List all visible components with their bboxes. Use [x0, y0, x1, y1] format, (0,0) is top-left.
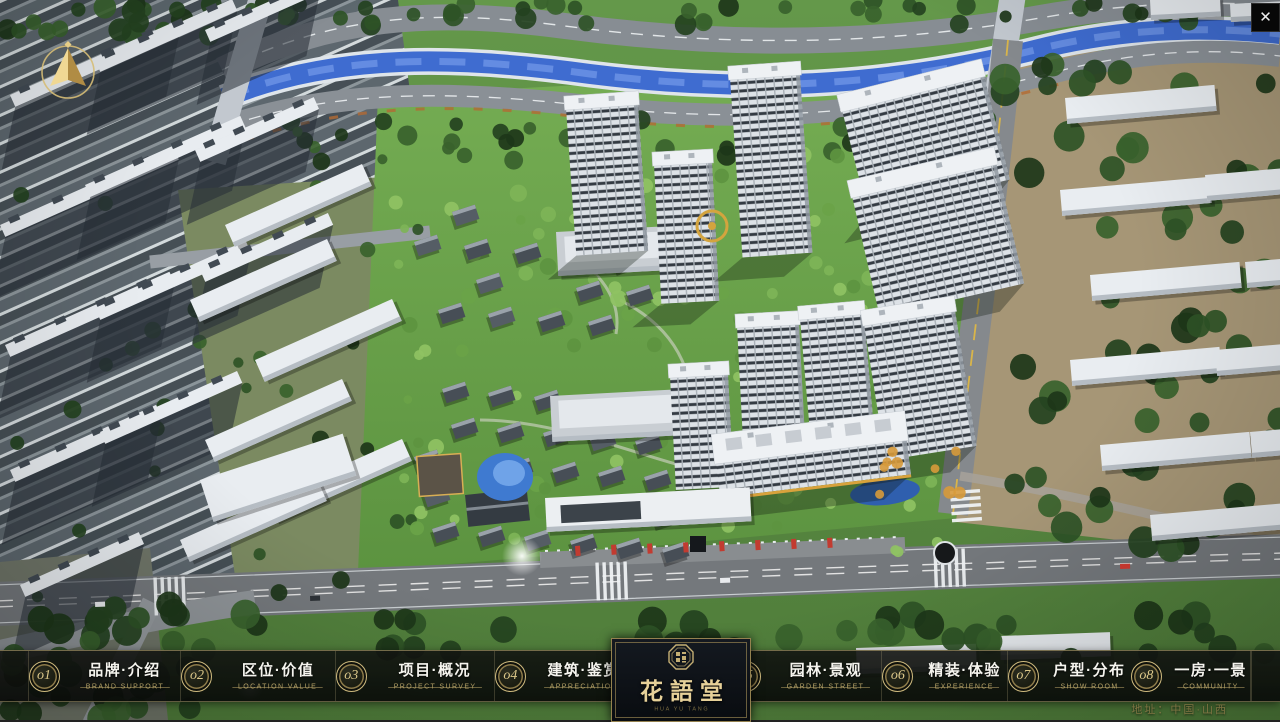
nav-label-en: GARDEN STREET — [787, 683, 865, 691]
nav-label-en: PROJECT SURVEY — [393, 683, 476, 691]
close-button[interactable]: ✕ — [1251, 3, 1280, 32]
nav-number-medallion: o8 — [1131, 661, 1162, 692]
nav-item-brand-intro[interactable]: o1 品牌·介绍 BRAND SUPPORT — [29, 651, 182, 701]
nav-item-room-view[interactable]: o8 一房·一景 COMMUNITY — [1131, 651, 1252, 701]
nav-item-project-survey[interactable]: o3 项目·概况 PROJECT SURVEY — [336, 651, 495, 701]
nav-label-zh: 园林·景观 — [790, 659, 863, 680]
nav-label-zh: 项目·概况 — [399, 659, 472, 680]
bottom-navbar: o1 品牌·介绍 BRAND SUPPORT o2 区位·价值 LOCATION… — [0, 650, 1280, 702]
nav-item-interior-experience[interactable]: o6 精装·体验 EXPERIENCE — [882, 651, 1007, 701]
nav-label-zh: 一房·一景 — [1174, 659, 1247, 680]
seal-emblem-icon — [668, 644, 694, 670]
masterplan-render — [0, 0, 1280, 720]
project-logo-title: 花語堂 — [640, 672, 730, 706]
nav-item-location-value[interactable]: o2 区位·价值 LOCATION VALUE — [181, 651, 335, 701]
nav-number-medallion: o6 — [882, 661, 913, 692]
compass — [36, 34, 100, 104]
compass-north-marker — [64, 41, 71, 48]
project-logo-panel: 花語堂 HUA YU TANG — [611, 638, 751, 722]
close-icon: ✕ — [1259, 10, 1272, 25]
project-address: 地址：中国·山西 — [1131, 701, 1228, 717]
compass-arrow-left — [50, 48, 68, 86]
nav-label-zh: 户型·分布 — [1053, 659, 1126, 680]
navbar-center-slot: 花語堂 HUA YU TANG — [634, 651, 731, 701]
nav-label-en: LOCATION VALUE — [238, 683, 317, 691]
nav-item-unit-distribution[interactable]: o7 户型·分布 SHOW ROOM — [1008, 651, 1131, 701]
nav-label-zh: 精装·体验 — [928, 659, 1001, 680]
nav-label-en: SHOW ROOM — [1060, 683, 1118, 691]
nav-label-zh: 建筑·鉴赏 — [548, 659, 621, 680]
nav-item-garden-landscape[interactable]: o5 园林·景观 GARDEN STREET — [730, 651, 882, 701]
nav-label-en: COMMUNITY — [1183, 683, 1239, 691]
nav-label-en: EXPERIENCE — [935, 683, 994, 691]
nav-label-en: BRAND SUPPORT — [85, 683, 163, 691]
nav-number-medallion: o2 — [181, 661, 212, 692]
navbar-spacer — [1251, 651, 1280, 701]
nav-number-medallion: o4 — [495, 661, 526, 692]
nav-number-medallion: o7 — [1008, 661, 1039, 692]
project-logo-subtitle: HUA YU TANG — [654, 706, 709, 712]
nav-number-medallion: o1 — [29, 661, 60, 692]
compass-arrow-right — [68, 48, 86, 86]
nav-number-medallion: o3 — [336, 661, 367, 692]
nav-label-zh: 品牌·介绍 — [88, 659, 161, 680]
nav-label-en: APPRECIATION — [550, 683, 618, 691]
nav-label-zh: 区位·价值 — [242, 659, 315, 680]
navbar-spacer — [0, 651, 29, 701]
